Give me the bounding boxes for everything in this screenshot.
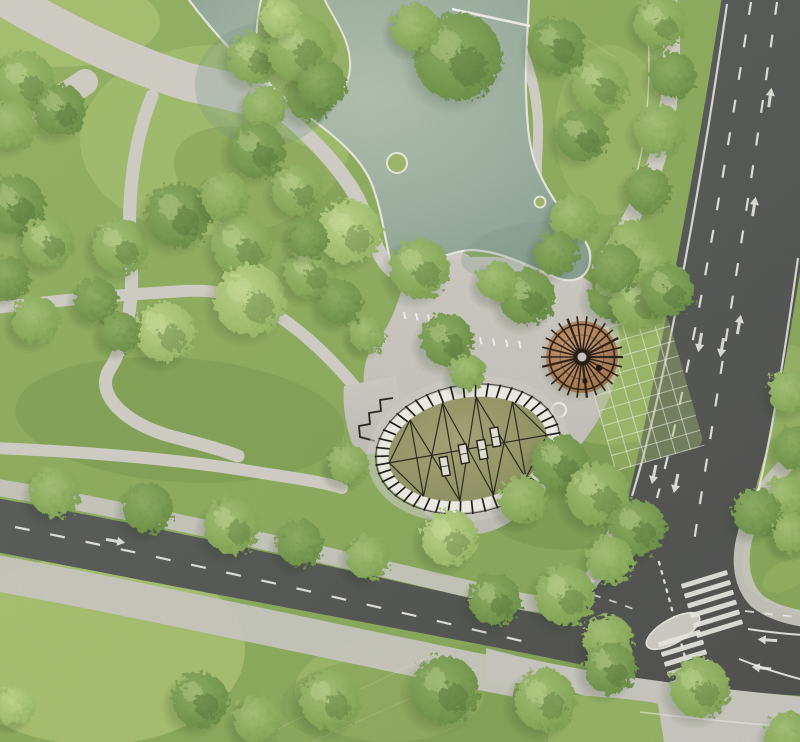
site-plan-svg xyxy=(0,0,800,742)
grain-overlay xyxy=(0,0,800,742)
scene-root xyxy=(0,0,800,742)
site-plan-image xyxy=(0,0,800,742)
